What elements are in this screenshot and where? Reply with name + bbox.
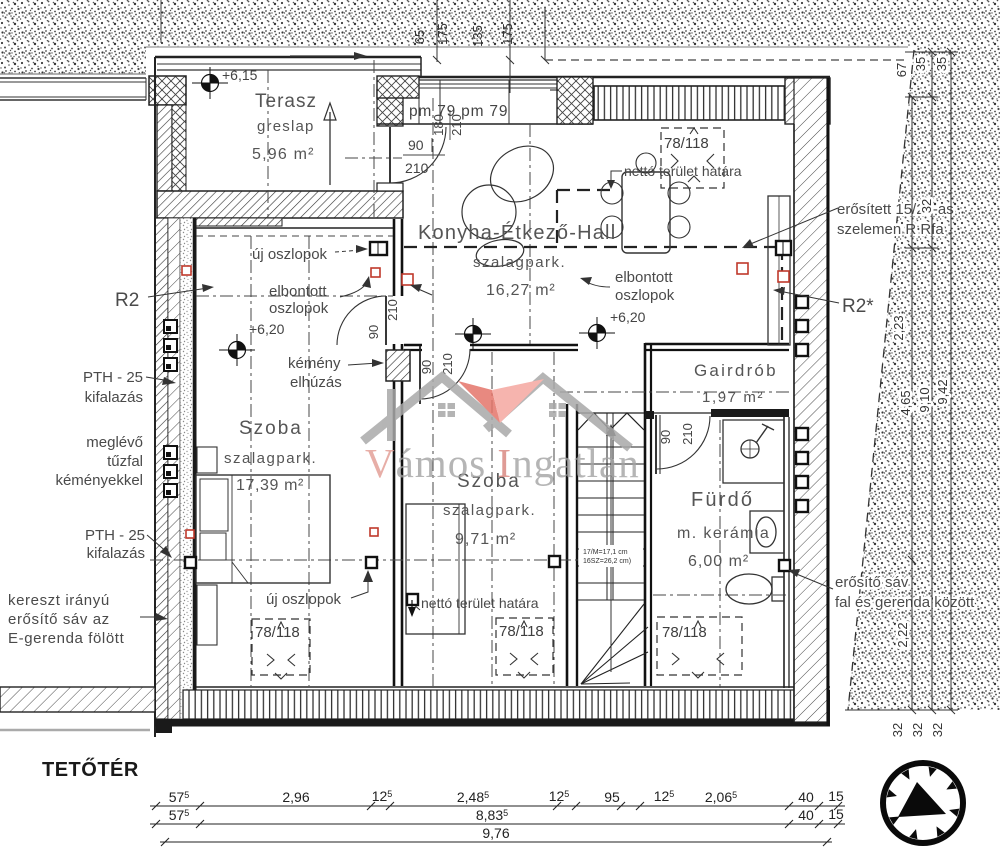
svg-text:135: 135 [470,25,485,47]
svg-text:32: 32 [930,723,945,737]
svg-text:szalagpark.: szalagpark. [443,502,536,519]
svg-text:9,42: 9,42 [935,379,950,404]
svg-text:6,00 m²: 6,00 m² [688,553,749,570]
svg-text:9,71 m²: 9,71 m² [455,531,516,548]
svg-text:nettó terület határa: nettó terület határa [421,595,539,611]
svg-text:35: 35 [913,57,928,71]
svg-text:1,97 m²: 1,97 m² [702,389,764,406]
svg-text:2,23: 2,23 [891,315,906,340]
svg-text:210: 210 [385,299,400,321]
svg-text:2,96: 2,96 [282,789,309,805]
svg-text:E-gerenda fölött: E-gerenda fölött [8,630,125,647]
svg-text:210: 210 [680,423,695,445]
svg-text:szelemen R Rfa: szelemen R Rfa [837,221,944,238]
svg-text:R2*: R2* [842,296,874,317]
svg-text:PTH - 25: PTH - 25 [83,369,143,386]
svg-text:+6,20: +6,20 [610,309,646,325]
svg-text:40: 40 [798,789,814,805]
svg-text:szalagpark.: szalagpark. [473,254,566,271]
svg-text:pm 79 pm 79: pm 79 pm 79 [409,103,508,120]
svg-text:PTH - 25: PTH - 25 [85,527,145,544]
svg-text:szalagpark.: szalagpark. [224,450,317,467]
svg-text:greslap: greslap [257,118,315,135]
svg-text:40: 40 [798,807,814,823]
svg-text:Gairdrób: Gairdrób [694,361,778,380]
svg-text:Konyha-Étkező-Hall: Konyha-Étkező-Hall [418,221,616,244]
svg-text:90: 90 [419,360,434,374]
svg-text:kifalazás: kifalazás [87,545,145,562]
svg-text:32: 32 [890,723,905,737]
svg-text:meglévő: meglévő [86,434,143,451]
svg-text:elhúzás: elhúzás [290,374,342,391]
svg-text:5,96 m²: 5,96 m² [252,146,315,163]
svg-text:TETŐTÉR: TETŐTÉR [42,758,139,781]
svg-text:+6,15: +6,15 [222,67,258,83]
svg-text:15: 15 [828,806,844,822]
svg-text:4,65: 4,65 [898,390,913,415]
svg-text:175: 175 [435,23,450,45]
svg-text:90: 90 [366,325,381,339]
svg-text:2,22: 2,22 [895,622,910,647]
svg-text:95: 95 [604,789,620,805]
svg-text:nettó terület határa: nettó terület határa [624,163,742,179]
svg-text:90: 90 [408,137,424,153]
svg-text:R2: R2 [115,290,139,311]
svg-text:16,27 m²: 16,27 m² [486,282,556,299]
svg-text:16SZ=26,2 cm): 16SZ=26,2 cm) [583,558,631,565]
svg-text:Vámos Ingatlan: Vámos Ingatlan [365,440,640,486]
svg-text:erősítő sáv: erősítő sáv [835,574,909,591]
svg-text:32: 32 [919,199,934,213]
svg-text:Fürdő: Fürdő [691,489,754,511]
svg-text:fal és gerenda között: fal és gerenda között [835,594,975,611]
svg-text:17,39 m²: 17,39 m² [236,477,304,494]
svg-text:Terasz: Terasz [255,91,317,112]
svg-text:erősítő sáv az: erősítő sáv az [8,611,110,628]
svg-text:elbontott: elbontott [615,269,673,286]
svg-text:9,10: 9,10 [917,387,932,412]
svg-text:Szoba: Szoba [239,418,303,439]
svg-text:78/118: 78/118 [255,624,300,641]
svg-text:új oszlopok: új oszlopok [266,591,342,608]
svg-text:m. kerámia: m. kerámia [677,525,770,542]
svg-text:78/118: 78/118 [664,135,709,152]
svg-text:175: 175 [500,23,515,45]
svg-text:oszlopok: oszlopok [269,300,329,317]
svg-text:35: 35 [934,57,949,71]
svg-text:oszlopok: oszlopok [615,287,675,304]
svg-text:78/118: 78/118 [662,624,707,641]
svg-text:tűzfal: tűzfal [107,453,143,470]
svg-text:kéményekkel: kéményekkel [55,472,143,489]
svg-text:32: 32 [910,723,925,737]
svg-text:új oszlopok: új oszlopok [252,246,328,263]
svg-text:erősített 15/20-as: erősített 15/20-as [837,201,954,218]
svg-text:kifalazás: kifalazás [85,389,143,406]
svg-text:67: 67 [894,63,909,77]
svg-text:90: 90 [658,430,673,444]
svg-text:kereszt irányú: kereszt irányú [8,592,110,609]
svg-text:65: 65 [412,30,427,44]
svg-text:elbontott: elbontott [269,283,327,300]
svg-text:17/M=17,1 cm: 17/M=17,1 cm [583,549,628,556]
svg-text:+6,20: +6,20 [249,321,285,337]
svg-text:15: 15 [828,788,844,804]
svg-text:210: 210 [405,160,429,176]
svg-text:9,76: 9,76 [482,825,509,841]
svg-text:kémény: kémény [288,355,341,372]
